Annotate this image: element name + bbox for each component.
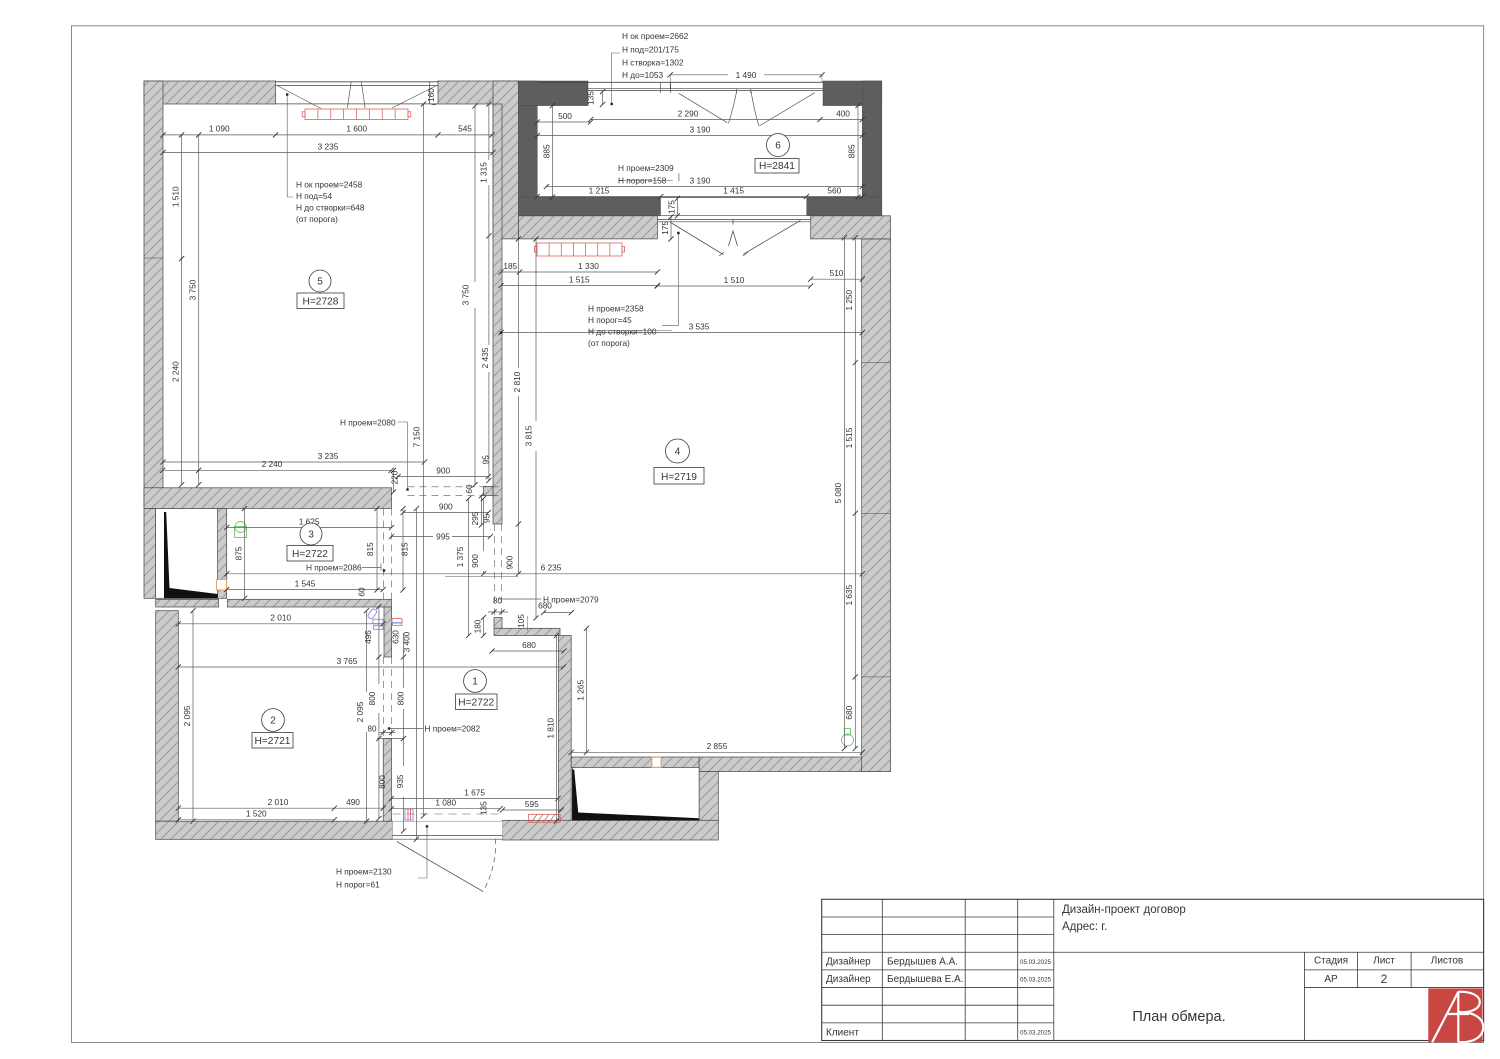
svg-text:135: 135 — [586, 91, 596, 105]
svg-text:175: 175 — [666, 200, 676, 214]
svg-text:105: 105 — [516, 614, 526, 628]
svg-text:3 190: 3 190 — [690, 124, 711, 134]
svg-text:5 080: 5 080 — [833, 482, 843, 503]
svg-text:80: 80 — [368, 725, 377, 734]
svg-text:1 315: 1 315 — [478, 162, 488, 183]
svg-text:1 250: 1 250 — [844, 289, 854, 310]
svg-text:05.03.2025: 05.03.2025 — [1020, 976, 1052, 983]
svg-text:1 675: 1 675 — [464, 787, 485, 797]
svg-text:3 750: 3 750 — [188, 279, 198, 300]
svg-text:95: 95 — [482, 513, 492, 523]
svg-text:1 265: 1 265 — [575, 680, 585, 701]
svg-text:Н порог=45: Н порог=45 — [588, 315, 632, 325]
svg-text:900: 900 — [505, 555, 515, 569]
svg-text:1 090: 1 090 — [209, 124, 230, 134]
svg-text:95: 95 — [481, 455, 491, 465]
svg-text:H=2841: H=2841 — [759, 161, 795, 172]
svg-text:План обмера.: План обмера. — [1132, 1009, 1225, 1025]
svg-text:Дизайнер: Дизайнер — [826, 974, 871, 985]
svg-text:900: 900 — [470, 554, 480, 568]
svg-text:680: 680 — [844, 705, 854, 719]
svg-text:400: 400 — [836, 108, 850, 118]
svg-text:815: 815 — [365, 542, 375, 556]
svg-text:Н проем=2309: Н проем=2309 — [618, 163, 674, 173]
svg-text:Стадия: Стадия — [1314, 956, 1348, 967]
svg-text:05.03.2025: 05.03.2025 — [1020, 1030, 1052, 1037]
svg-text:500: 500 — [558, 111, 572, 121]
svg-text:3 235: 3 235 — [318, 141, 339, 151]
svg-text:2 290: 2 290 — [678, 108, 699, 118]
svg-text:Бердышева Е.А.: Бердышева Е.А. — [887, 974, 964, 985]
svg-text:60: 60 — [464, 484, 474, 494]
svg-text:3 535: 3 535 — [689, 321, 710, 331]
svg-text:H=2722: H=2722 — [458, 698, 494, 709]
svg-text:490: 490 — [346, 797, 360, 807]
svg-text:875: 875 — [233, 546, 243, 560]
svg-text:2 810: 2 810 — [512, 371, 522, 392]
svg-text:885: 885 — [846, 144, 856, 158]
svg-text:1 545: 1 545 — [295, 578, 316, 588]
svg-text:Н проем=2130: Н проем=2130 — [336, 867, 392, 877]
svg-text:1 515: 1 515 — [844, 427, 854, 448]
svg-text:220: 220 — [390, 470, 400, 484]
svg-text:Листов: Листов — [1431, 956, 1464, 967]
svg-text:1 375: 1 375 — [455, 546, 465, 567]
svg-text:2 095: 2 095 — [355, 701, 365, 722]
svg-text:Лист: Лист — [1373, 956, 1395, 967]
svg-text:АР: АР — [1324, 974, 1338, 985]
svg-text:995: 995 — [436, 532, 450, 542]
svg-text:295: 295 — [470, 511, 480, 525]
svg-text:Н под=201/175: Н под=201/175 — [622, 45, 679, 55]
svg-text:Н проем=2082: Н проем=2082 — [425, 724, 481, 734]
svg-text:1 215: 1 215 — [589, 185, 610, 195]
svg-text:3 190: 3 190 — [690, 175, 711, 185]
svg-text:2 240: 2 240 — [262, 459, 283, 469]
svg-text:2: 2 — [1381, 972, 1388, 986]
svg-text:Н до=1053: Н до=1053 — [622, 70, 663, 80]
svg-text:1 510: 1 510 — [170, 186, 180, 207]
svg-text:Дизайн-проект договор: Дизайн-проект договор — [1062, 904, 1186, 916]
svg-text:560: 560 — [827, 185, 841, 195]
svg-text:800: 800 — [367, 691, 377, 705]
svg-text:Н до створки=648: Н до створки=648 — [296, 203, 365, 213]
svg-text:3 750: 3 750 — [461, 284, 471, 305]
svg-text:1 600: 1 600 — [346, 124, 367, 134]
svg-text:1 520: 1 520 — [246, 809, 267, 819]
svg-text:935: 935 — [395, 774, 405, 788]
svg-text:3 235: 3 235 — [318, 451, 339, 461]
svg-text:1 635: 1 635 — [844, 584, 854, 605]
svg-text:2 010: 2 010 — [270, 613, 291, 623]
svg-text:900: 900 — [439, 501, 453, 511]
svg-text:135: 135 — [478, 801, 488, 815]
svg-text:815: 815 — [400, 542, 410, 556]
svg-text:1 080: 1 080 — [435, 798, 456, 808]
svg-text:175: 175 — [660, 221, 670, 235]
svg-text:Н проем=2358: Н проем=2358 — [588, 304, 644, 314]
svg-text:Н до створки=100: Н до створки=100 — [588, 327, 657, 337]
svg-text:4: 4 — [675, 446, 681, 457]
svg-text:2 240: 2 240 — [170, 361, 180, 382]
svg-text:H=2719: H=2719 — [661, 472, 697, 483]
svg-text:Н под=54: Н под=54 — [296, 191, 333, 201]
svg-text:H=2722: H=2722 — [292, 549, 328, 560]
svg-text:2: 2 — [270, 715, 276, 726]
svg-text:545: 545 — [458, 124, 472, 134]
svg-text:H=2721: H=2721 — [255, 736, 291, 747]
svg-text:1 510: 1 510 — [724, 275, 745, 285]
svg-text:680: 680 — [522, 640, 536, 650]
svg-text:6: 6 — [775, 140, 781, 151]
svg-text:510: 510 — [830, 268, 844, 278]
svg-text:900: 900 — [436, 465, 450, 475]
svg-text:Н проем=2086: Н проем=2086 — [306, 563, 362, 573]
svg-text:1 490: 1 490 — [736, 70, 757, 80]
svg-text:(от порога): (от порога) — [296, 214, 338, 224]
svg-text:1 515: 1 515 — [569, 274, 590, 284]
svg-text:800: 800 — [377, 775, 387, 789]
svg-text:800: 800 — [395, 691, 405, 705]
svg-text:3 765: 3 765 — [337, 656, 358, 666]
svg-text:Н порог=61: Н порог=61 — [336, 880, 380, 890]
svg-text:Адрес: г.: Адрес: г. — [1062, 921, 1107, 933]
svg-text:6 235: 6 235 — [541, 563, 562, 573]
svg-text:2 855: 2 855 — [707, 741, 728, 751]
svg-text:1 415: 1 415 — [723, 185, 744, 195]
svg-text:180: 180 — [472, 619, 482, 633]
svg-text:05.03.2025: 05.03.2025 — [1020, 959, 1052, 966]
svg-text:7 150: 7 150 — [412, 426, 422, 447]
svg-text:160: 160 — [426, 88, 436, 102]
svg-text:Дизайнер: Дизайнер — [826, 957, 871, 968]
svg-text:Н ок проем=2458: Н ок проем=2458 — [296, 180, 363, 190]
svg-text:2 010: 2 010 — [268, 797, 289, 807]
svg-text:1 330: 1 330 — [578, 261, 599, 271]
svg-text:Н ок проем=2662: Н ок проем=2662 — [622, 31, 689, 41]
svg-text:630: 630 — [391, 630, 401, 644]
svg-text:885: 885 — [541, 144, 551, 158]
svg-text:80: 80 — [493, 597, 502, 606]
svg-text:495: 495 — [363, 630, 373, 644]
svg-text:Н створка=1302: Н створка=1302 — [622, 58, 684, 68]
svg-text:2 435: 2 435 — [480, 347, 490, 368]
svg-text:Бердышев А.А.: Бердышев А.А. — [887, 957, 958, 968]
svg-text:Н проем=2079: Н проем=2079 — [543, 595, 599, 605]
svg-text:1 810: 1 810 — [545, 717, 555, 738]
svg-text:185: 185 — [503, 261, 517, 271]
svg-text:3 815: 3 815 — [524, 425, 534, 446]
svg-text:60: 60 — [357, 587, 367, 597]
svg-text:Клиент: Клиент — [826, 1028, 859, 1039]
svg-text:2 095: 2 095 — [182, 705, 192, 726]
svg-text:5: 5 — [317, 276, 323, 287]
svg-text:595: 595 — [525, 799, 539, 809]
svg-text:Н проем=2080: Н проем=2080 — [340, 418, 396, 428]
svg-text:1: 1 — [472, 676, 478, 687]
svg-text:H=2728: H=2728 — [303, 297, 339, 308]
svg-text:3: 3 — [308, 529, 314, 540]
svg-text:(от порога): (от порога) — [588, 338, 630, 348]
